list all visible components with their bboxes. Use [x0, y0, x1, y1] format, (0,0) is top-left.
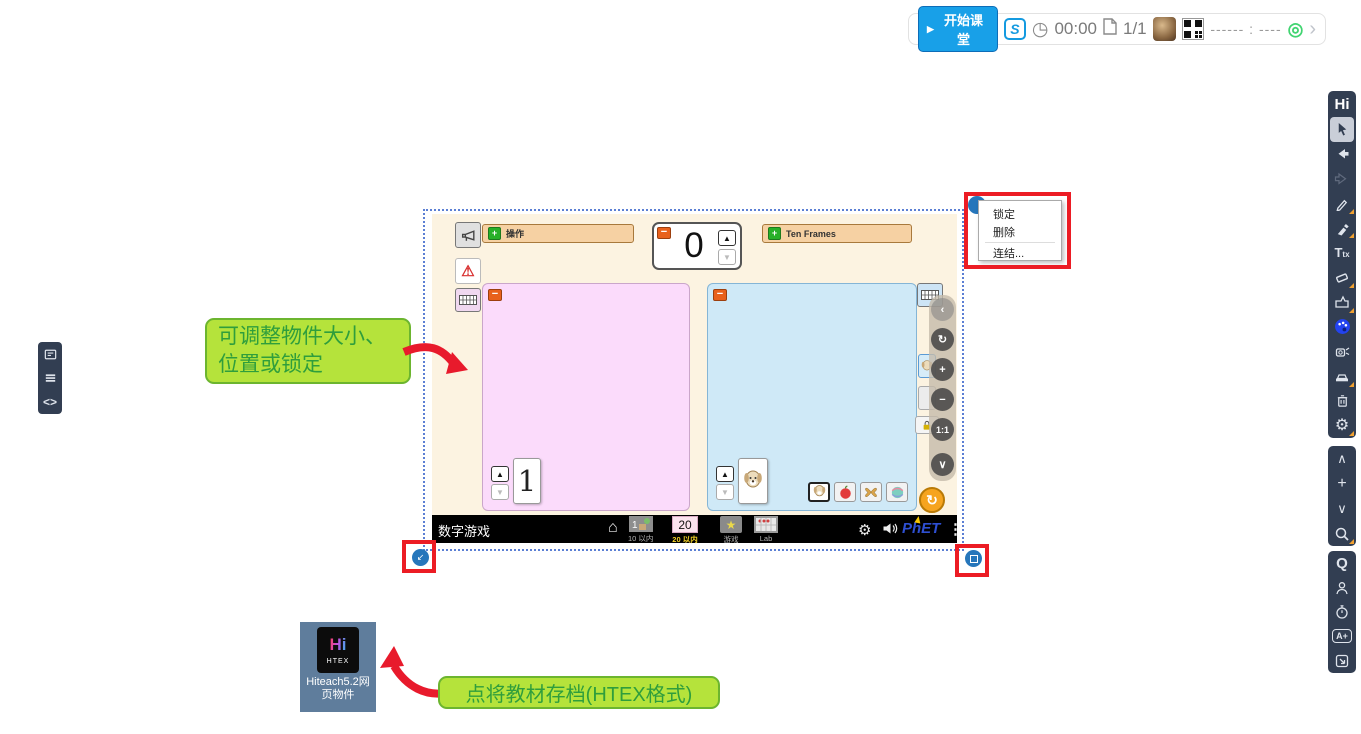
counter-collapse-button[interactable]: − [657, 227, 671, 239]
nav-tab-twenty[interactable]: 20 20 以内 [672, 516, 698, 545]
dog-icon [813, 484, 826, 500]
stamp-pad-button[interactable] [1328, 364, 1356, 389]
object-card [738, 458, 768, 504]
zoom-tool-button[interactable] [1328, 521, 1356, 546]
sokrates-button[interactable]: S [1004, 18, 1026, 40]
htex-logo: Hi [330, 635, 347, 655]
redo-button[interactable] [1328, 166, 1356, 191]
word-card: 1 [513, 458, 541, 504]
zoom-out-object-button[interactable]: − [931, 388, 954, 411]
trash-icon [1335, 393, 1350, 408]
ten-frame-left-button[interactable] [455, 288, 481, 312]
object-type-butterfly-button[interactable] [860, 482, 882, 502]
highlighter-icon [1335, 221, 1350, 236]
highlight-box-left-handle [402, 540, 436, 573]
htex-desktop-icon[interactable]: Hi HTEX Hiteach5.2网页物件 [300, 622, 376, 712]
warning-icon: ⚠ [461, 262, 474, 280]
nav-tab-game-label: 游戏 [724, 534, 739, 545]
gear-icon: ⚙ [1335, 418, 1349, 434]
nav-tab-ten-label: 10 以内 [628, 533, 653, 544]
warning-button[interactable]: ⚠ [455, 258, 481, 284]
word-panel-collapse-button[interactable]: − [488, 289, 502, 301]
phet-logo[interactable]: PhET [902, 520, 940, 537]
megaphone-button[interactable] [455, 222, 481, 248]
page-down-button[interactable]: ∨ [1328, 496, 1356, 521]
minimize-icon [1334, 653, 1350, 669]
grid-icon [459, 295, 477, 305]
collapse-toolbar-chevron[interactable]: › [1309, 19, 1316, 39]
highlighter-tool-button[interactable] [1328, 216, 1356, 241]
word-card-value: 1 [518, 464, 536, 498]
sound-button[interactable] [882, 521, 898, 541]
undo-icon [1334, 146, 1350, 162]
rotate-object-button[interactable]: ↻ [931, 328, 954, 351]
accordion-operation-label: 操作 [506, 227, 524, 240]
htex-format-label: HTEX [327, 658, 350, 665]
counter-down-button[interactable]: ▼ [718, 249, 736, 265]
actual-size-button[interactable]: 1:1 [931, 418, 954, 441]
hiteach-logo: Hi [1328, 91, 1356, 117]
qr-code-icon[interactable] [1182, 18, 1204, 40]
nav-tab-game[interactable]: ★ 游戏 [720, 516, 742, 545]
minimize-toolbar-button[interactable] [1328, 649, 1356, 673]
butterfly-icon [863, 485, 879, 499]
nav-tab-lab-label: Lab [760, 534, 773, 543]
expand-plus-icon: + [488, 227, 501, 240]
eraser-tool-button[interactable] [1328, 265, 1356, 290]
main-tool-sidebar: Hi Ttx [1328, 91, 1356, 438]
start-class-button[interactable]: ▶ 开始课堂 [918, 6, 998, 52]
speaker-icon [882, 521, 898, 536]
resize-callout-text: 可调整物件大小、位置或锁定 [218, 323, 398, 380]
page-file-icon [1103, 18, 1117, 40]
text-tool-icon: Ttx [1334, 245, 1349, 260]
nav-tab-lab[interactable]: Lab [754, 516, 778, 543]
pen-tool-button[interactable] [1328, 191, 1356, 216]
svg-text:1: 1 [632, 520, 638, 531]
timer-value: 00:00 [1054, 19, 1097, 39]
start-class-label: 开始课堂 [938, 10, 989, 48]
refresh-button[interactable]: ↻ [919, 487, 945, 513]
quiz-button[interactable]: Q [1328, 551, 1356, 575]
object-panel: − ▲ ▼ [707, 283, 917, 511]
sim-menu-kebab-icon[interactable]: ⋮ [948, 520, 963, 538]
text-tool-button[interactable]: Ttx [1328, 240, 1356, 265]
sim-nav-bar: 数字游戏 ⌂ 1 10 以内 20 20 以内 ★ 游戏 Lab ⚙ PhE [432, 515, 957, 543]
score-icon: A+ [1332, 629, 1352, 643]
zoom-in-object-button[interactable]: + [931, 358, 954, 381]
phet-sim-object[interactable]: ⚠ + 操作 − 0 ▲ ▼ + Ten Frames − [432, 214, 957, 543]
cursor-icon [1335, 122, 1350, 137]
nav-tab-twenty-label: 20 以内 [672, 534, 697, 545]
list-panel-button[interactable] [38, 367, 62, 389]
object-panel-collapse-button[interactable]: − [713, 289, 727, 301]
object-type-apple-button[interactable] [834, 482, 856, 502]
toolbar-collapse-left-button[interactable]: ‹ [931, 298, 954, 321]
object-spinner-down-button[interactable]: ▼ [716, 484, 734, 500]
archive-callout: 点将教材存档(HTEX格式) [438, 676, 720, 709]
highlight-box-context-menu [964, 192, 1071, 269]
add-page-button[interactable]: + [1328, 471, 1356, 496]
object-type-ball-button[interactable] [886, 482, 908, 502]
shape-icon [1334, 294, 1350, 310]
sim-title: 数字游戏 [438, 521, 490, 540]
chevron-down-icon: ∨ [1337, 502, 1347, 515]
eraser-icon [1334, 269, 1350, 285]
dog-icon [743, 468, 763, 494]
counter-value: 0 [672, 226, 716, 266]
htex-icon-label: Hiteach5.2网页物件 [301, 676, 375, 702]
resize-callout: 可调整物件大小、位置或锁定 [205, 318, 411, 384]
sim-stage: ⚠ + 操作 − 0 ▲ ▼ + Ten Frames − [432, 214, 957, 515]
sokrates-icon: S [1010, 21, 1019, 37]
word-spinner-down-button[interactable]: ▼ [491, 484, 509, 500]
interactive-sidebar: Q A+ [1328, 551, 1356, 673]
select-tool-button[interactable] [1330, 117, 1354, 142]
play-icon: ▶ [927, 24, 934, 35]
apple-icon [838, 485, 853, 500]
timer-button[interactable] [1328, 600, 1356, 624]
webcam-button[interactable] [1328, 339, 1356, 364]
shape-tool-button[interactable] [1328, 290, 1356, 315]
lab-screen-thumb [754, 516, 778, 533]
settings-button[interactable]: ⚙ [1328, 413, 1356, 438]
object-type-dog-button[interactable] [808, 482, 830, 502]
accordion-ten-frames-label: Ten Frames [786, 229, 836, 239]
page-up-button[interactable]: ∧ [1328, 446, 1356, 471]
accordion-ten-frames[interactable]: + Ten Frames [762, 224, 912, 243]
page-indicator: 1/1 [1123, 19, 1147, 39]
word-panel: − ▲ ▼ 1 [482, 283, 690, 511]
list-icon [43, 371, 58, 386]
document-icon [43, 347, 58, 362]
pen-icon [1335, 196, 1350, 211]
side-panel-toolbar: <> [38, 342, 62, 414]
counter-up-button[interactable]: ▲ [718, 230, 736, 246]
pages-panel-button[interactable] [38, 343, 62, 365]
trash-button[interactable] [1328, 389, 1356, 414]
number-counter: − 0 ▲ ▼ [652, 222, 742, 270]
collapse-panel-button[interactable]: <> [38, 391, 62, 413]
red-arrow-right [400, 338, 472, 386]
home-icon[interactable]: ⌂ [608, 519, 618, 537]
code-icon: <> [43, 395, 57, 409]
stamp-pad-icon [1334, 368, 1350, 384]
avatar[interactable] [1153, 17, 1177, 41]
object-toolbar: ‹ ↻ + − 1:1 ∨ [929, 295, 956, 481]
stopwatch-icon [1334, 604, 1350, 620]
class-toolbar: ▶ 开始课堂 S ◷ 00:00 1/1 ------ : ---- ◎ › [908, 13, 1326, 45]
palette-icon [1334, 318, 1351, 335]
highlight-box-right-handle [955, 544, 989, 577]
object-spinner-up-button[interactable]: ▲ [716, 466, 734, 482]
ball-icon [890, 485, 905, 500]
nav-tab-twenty-thumb: 20 [672, 516, 698, 533]
chevron-up-icon: ∧ [1337, 452, 1347, 465]
sim-settings-gear-icon[interactable]: ⚙ [858, 521, 871, 539]
ten-screen-thumb: 1 [629, 516, 653, 532]
scoreboard-button[interactable]: A+ [1328, 624, 1356, 648]
desktop-canvas: ▶ 开始课堂 S ◷ 00:00 1/1 ------ : ---- ◎ › H… [0, 0, 1361, 734]
page-nav-sidebar: ∧ + ∨ [1328, 446, 1356, 546]
megaphone-icon [460, 227, 477, 244]
magnifier-icon [1334, 526, 1350, 542]
person-icon [1334, 580, 1350, 596]
plus-icon: + [1337, 476, 1346, 492]
star-icon: ★ [720, 516, 742, 533]
webcam-icon [1334, 344, 1350, 360]
pick-student-button[interactable] [1328, 575, 1356, 599]
accordion-operation[interactable]: + 操作 [482, 224, 634, 243]
undo-button[interactable] [1328, 142, 1356, 167]
nav-tab-ten[interactable]: 1 10 以内 [628, 516, 653, 544]
clock-icon: ◷ [1032, 20, 1049, 39]
redo-icon [1334, 171, 1350, 187]
word-spinner-up-button[interactable]: ▲ [491, 466, 509, 482]
archive-callout-text: 点将教材存档(HTEX格式) [466, 678, 693, 707]
htex-app-tile: Hi HTEX [317, 627, 359, 673]
broadcast-icon: ◎ [1288, 19, 1304, 40]
expand-plus-icon: + [768, 227, 781, 240]
quiz-icon: Q [1336, 555, 1348, 572]
toolbar-more-button[interactable]: ∨ [931, 453, 954, 476]
palette-button[interactable] [1328, 315, 1356, 340]
session-code: ------ : ---- [1210, 21, 1281, 37]
